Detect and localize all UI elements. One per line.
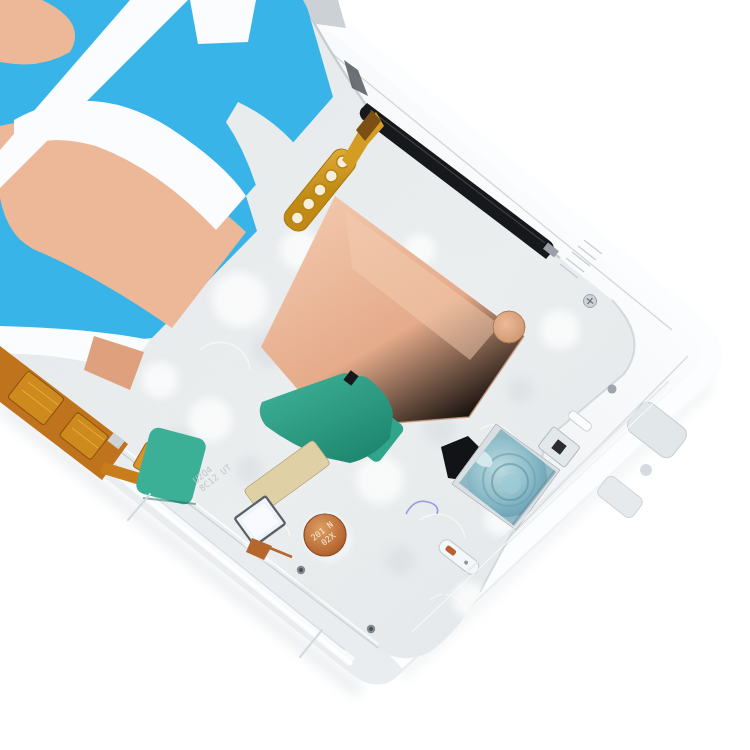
phillips-screw xyxy=(584,295,597,308)
white-film-patch xyxy=(190,0,256,44)
phone-midframe-photo: 201 N 02X U2Q4 8C12 UT xyxy=(0,0,750,750)
product-photo: 201 N 02X U2Q4 8C12 UT xyxy=(0,0,750,750)
rail-hole xyxy=(608,385,617,394)
etched-copper-coin: 201 N 02X xyxy=(301,511,349,559)
copper-disc-corner xyxy=(493,311,525,343)
